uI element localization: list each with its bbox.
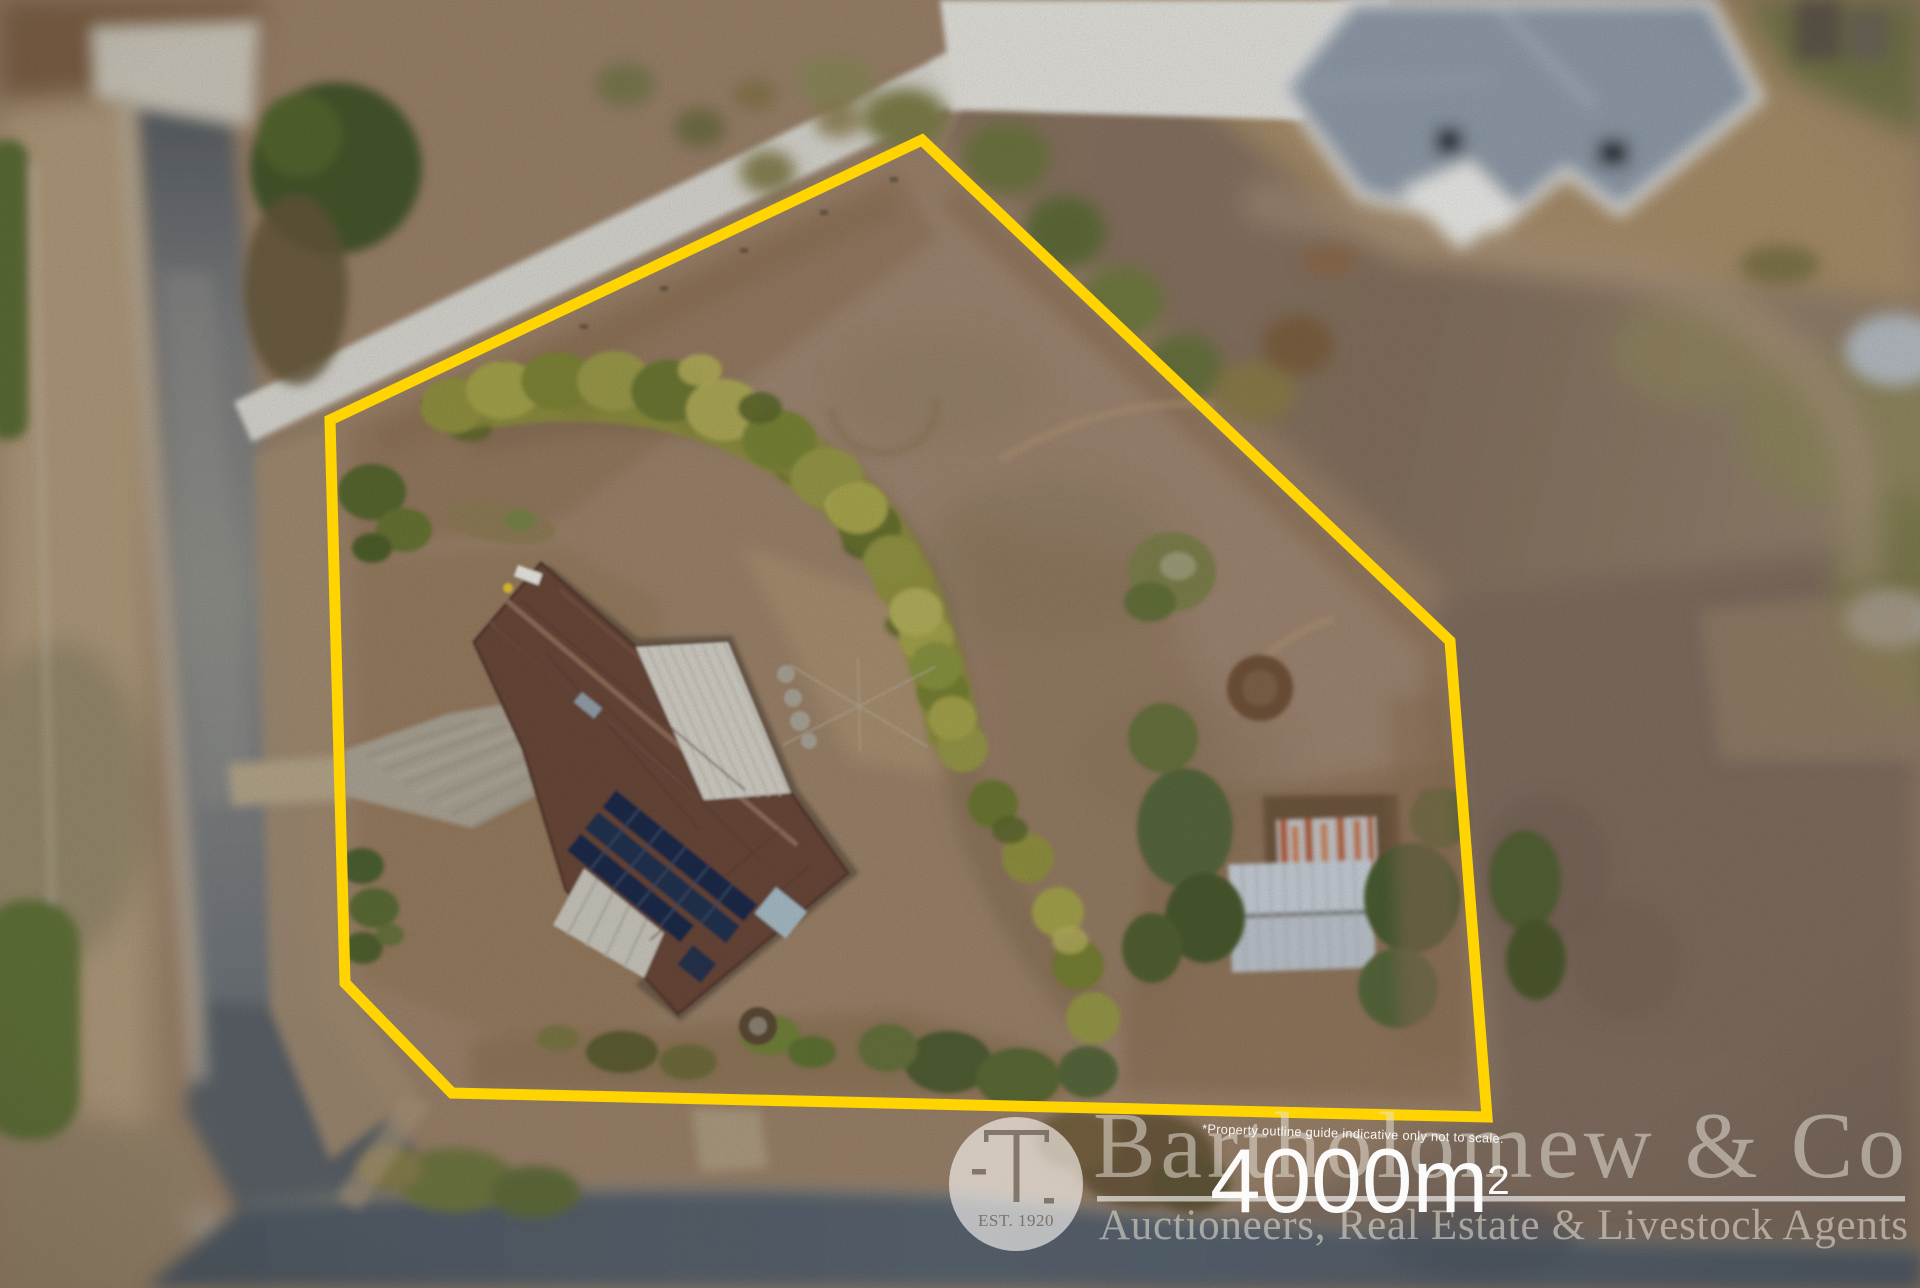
svg-text:2: 2 [1487, 1157, 1510, 1203]
svg-text:4000m: 4000m [1210, 1131, 1488, 1232]
svg-text:EST. 1920: EST. 1920 [978, 1211, 1054, 1230]
